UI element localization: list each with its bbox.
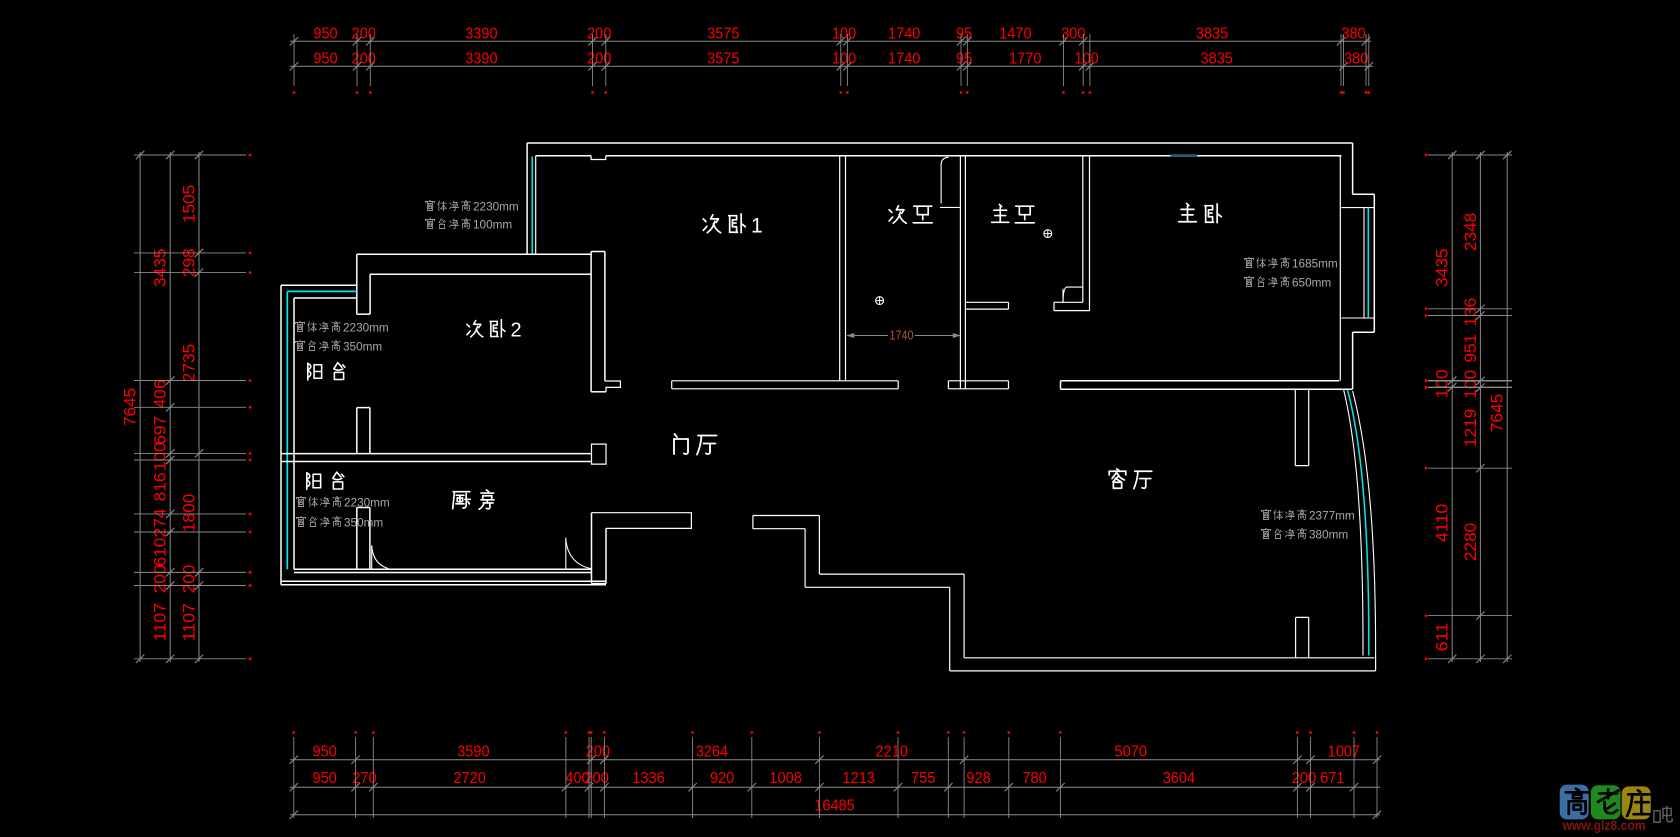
- svg-text:951: 951: [1461, 334, 1480, 363]
- svg-text:780: 780: [1022, 770, 1046, 787]
- svg-text:1740: 1740: [890, 329, 914, 343]
- svg-text:5070: 5070: [1115, 744, 1147, 761]
- svg-text:1740: 1740: [888, 51, 920, 68]
- svg-text:697: 697: [151, 416, 170, 445]
- svg-text:2735: 2735: [180, 344, 199, 382]
- svg-text:4110: 4110: [1433, 504, 1452, 542]
- svg-text:3604: 3604: [1163, 770, 1195, 787]
- svg-text:380: 380: [1341, 26, 1365, 43]
- svg-text:200: 200: [180, 565, 199, 594]
- svg-text:816: 816: [151, 473, 170, 502]
- svg-text:380mm: 380mm: [1309, 528, 1348, 541]
- svg-text:300: 300: [1061, 26, 1085, 43]
- svg-text:950: 950: [313, 51, 337, 68]
- svg-text:200: 200: [1292, 770, 1316, 787]
- svg-text:650mm: 650mm: [1292, 276, 1331, 289]
- svg-text:100mm: 100mm: [473, 218, 512, 231]
- svg-text:95: 95: [956, 26, 972, 43]
- svg-text:100: 100: [1433, 369, 1452, 398]
- svg-text:1336: 1336: [632, 770, 664, 787]
- svg-text:406: 406: [151, 380, 170, 409]
- svg-text:3590: 3590: [457, 744, 489, 761]
- svg-text:95: 95: [956, 51, 972, 68]
- svg-text:2377mm: 2377mm: [1309, 509, 1355, 522]
- svg-text:1800: 1800: [180, 494, 199, 532]
- svg-text:100: 100: [1074, 51, 1098, 68]
- svg-text:1685mm: 1685mm: [1292, 257, 1338, 270]
- svg-text:950: 950: [313, 744, 337, 761]
- svg-text:1: 1: [751, 215, 763, 238]
- svg-text:3575: 3575: [707, 51, 739, 68]
- svg-text:1505: 1505: [180, 185, 199, 223]
- svg-text:2230mm: 2230mm: [344, 496, 390, 509]
- svg-text:3390: 3390: [465, 51, 497, 68]
- svg-text:1470: 1470: [999, 26, 1031, 43]
- svg-text:274: 274: [151, 509, 170, 538]
- svg-text:200: 200: [585, 770, 609, 787]
- svg-text:350mm: 350mm: [343, 340, 382, 353]
- svg-text:100: 100: [832, 51, 856, 68]
- svg-text:2: 2: [511, 320, 522, 342]
- svg-text:1008: 1008: [769, 770, 801, 787]
- svg-text:2230mm: 2230mm: [473, 200, 519, 213]
- svg-text:3835: 3835: [1201, 51, 1233, 68]
- svg-text:2348: 2348: [1461, 213, 1480, 251]
- svg-text:1213: 1213: [843, 770, 875, 787]
- svg-text:7645: 7645: [1488, 394, 1507, 432]
- svg-text:3435: 3435: [1433, 249, 1452, 287]
- svg-text:1007: 1007: [1328, 744, 1360, 761]
- svg-text:16485: 16485: [814, 798, 855, 815]
- svg-text:www.glz8.com: www.glz8.com: [1562, 817, 1646, 833]
- svg-text:1107: 1107: [151, 603, 170, 641]
- svg-text:671: 671: [1320, 770, 1344, 787]
- svg-text:200: 200: [587, 26, 611, 43]
- svg-text:920: 920: [710, 770, 734, 787]
- svg-text:1770: 1770: [1009, 51, 1041, 68]
- svg-text:200: 200: [151, 565, 170, 594]
- svg-text:2720: 2720: [453, 770, 485, 787]
- svg-text:950: 950: [313, 26, 337, 43]
- svg-text:3575: 3575: [707, 26, 739, 43]
- svg-text:3435: 3435: [151, 249, 170, 287]
- svg-text:1107: 1107: [180, 603, 199, 641]
- svg-text:610: 610: [151, 538, 170, 567]
- svg-text:950: 950: [313, 770, 337, 787]
- svg-text:136: 136: [1461, 298, 1480, 327]
- svg-text:100: 100: [832, 26, 856, 43]
- svg-text:2230mm: 2230mm: [343, 321, 389, 334]
- svg-text:928: 928: [966, 770, 990, 787]
- svg-text:3390: 3390: [465, 26, 497, 43]
- svg-text:200: 200: [352, 26, 376, 43]
- svg-text:100: 100: [1461, 370, 1480, 399]
- svg-text:3264: 3264: [696, 744, 728, 761]
- svg-text:2280: 2280: [1461, 523, 1480, 561]
- svg-text:380: 380: [1344, 51, 1368, 68]
- svg-text:200: 200: [587, 51, 611, 68]
- svg-text:200: 200: [352, 51, 376, 68]
- svg-text:3835: 3835: [1196, 26, 1228, 43]
- svg-text:350mm: 350mm: [344, 516, 383, 529]
- svg-text:755: 755: [911, 770, 935, 787]
- svg-text:1219: 1219: [1461, 409, 1480, 447]
- svg-text:1740: 1740: [888, 26, 920, 43]
- svg-text:611: 611: [1433, 623, 1452, 652]
- svg-text:100: 100: [151, 442, 170, 471]
- svg-text:2210: 2210: [876, 744, 908, 761]
